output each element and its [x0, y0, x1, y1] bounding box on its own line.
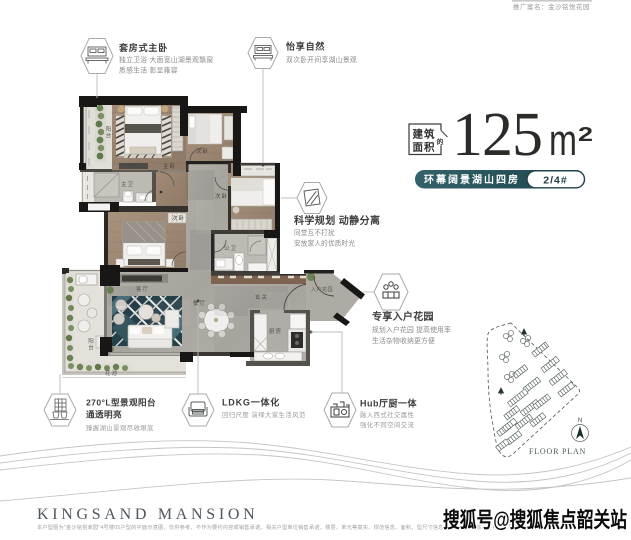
svg-text:厨房: 厨房	[269, 327, 282, 335]
svg-text:安放家人的优质时光: 安放家人的优质时光	[294, 239, 355, 248]
svg-text:面积: 面积	[413, 141, 436, 154]
svg-text:玄关: 玄关	[255, 293, 268, 301]
svg-text:N: N	[578, 418, 582, 424]
svg-text:2: 2	[578, 124, 593, 146]
svg-text:2/4#: 2/4#	[543, 175, 567, 187]
svg-text:科学规划 动静分离: 科学规划 动静分离	[294, 214, 380, 227]
svg-text:次卧: 次卧	[215, 192, 228, 200]
svg-text:的: 的	[437, 137, 444, 146]
svg-text:规划入户花园 提高使用率: 规划入户花园 提高使用率	[372, 325, 451, 334]
svg-text:回归尺度 演绎大家生活风范: 回归尺度 演绎大家生活风范	[222, 410, 306, 419]
svg-text:套房式主卧: 套房式主卧	[119, 42, 168, 53]
svg-text:FLOOR PLAN: FLOOR PLAN	[529, 447, 586, 456]
svg-text:花池: 花池	[105, 369, 118, 377]
svg-text:公卫: 公卫	[224, 245, 237, 252]
svg-text:生活杂物收纳更方便: 生活杂物收纳更方便	[372, 336, 435, 345]
svg-text:入户花园: 入户花园	[311, 286, 333, 293]
svg-text:m: m	[549, 116, 577, 165]
svg-text:KINGSAND MANSION: KINGSAND MANSION	[37, 506, 258, 523]
svg-text:专享入户花园: 专享入户花园	[372, 310, 434, 323]
svg-text:质感生活 彰显雍容: 质感生活 彰显雍容	[119, 66, 178, 75]
svg-text:阳台: 阳台	[105, 125, 112, 140]
svg-text:LDKG一体化: LDKG一体化	[222, 397, 280, 408]
svg-text:融入西式社交属性: 融入西式社交属性	[360, 410, 414, 419]
svg-text:主卧: 主卧	[163, 162, 176, 170]
svg-text:建筑: 建筑	[412, 128, 436, 141]
svg-text:同堂互不打扰: 同堂互不打扰	[294, 228, 335, 237]
svg-text:阳台: 阳台	[87, 337, 94, 352]
svg-text:270°L型景观阳台: 270°L型景观阳台	[86, 397, 156, 408]
svg-text:主卫: 主卫	[121, 180, 134, 188]
svg-text:Hub厅厨一体: Hub厅厨一体	[360, 398, 417, 409]
svg-text:通透明亮: 通透明亮	[86, 409, 122, 420]
svg-text:推广案名：金沙铭悦花园: 推广案名：金沙铭悦花园	[513, 2, 590, 11]
svg-text:怡享自然: 怡享自然	[286, 41, 325, 52]
svg-text:臻握湖山景观尽收眼底: 臻握湖山景观尽收眼底	[86, 423, 154, 432]
svg-text:次卧: 次卧	[172, 214, 185, 222]
svg-text:双次卧开间享湖山景观: 双次卧开间享湖山景观	[286, 55, 357, 64]
svg-text:独立卫浴 大面宽山湖景观飘窗: 独立卫浴 大面宽山湖景观飘窗	[119, 55, 213, 64]
svg-text:环幕阔景湖山四房: 环幕阔景湖山四房	[424, 173, 520, 186]
svg-text:搜狐号@搜狐焦点韶关站: 搜狐号@搜狐焦点韶关站	[443, 508, 627, 532]
svg-text:餐厅: 餐厅	[193, 299, 206, 307]
svg-text:强化不同空间交流: 强化不同空间交流	[360, 420, 415, 429]
svg-text:125: 125	[452, 101, 542, 169]
